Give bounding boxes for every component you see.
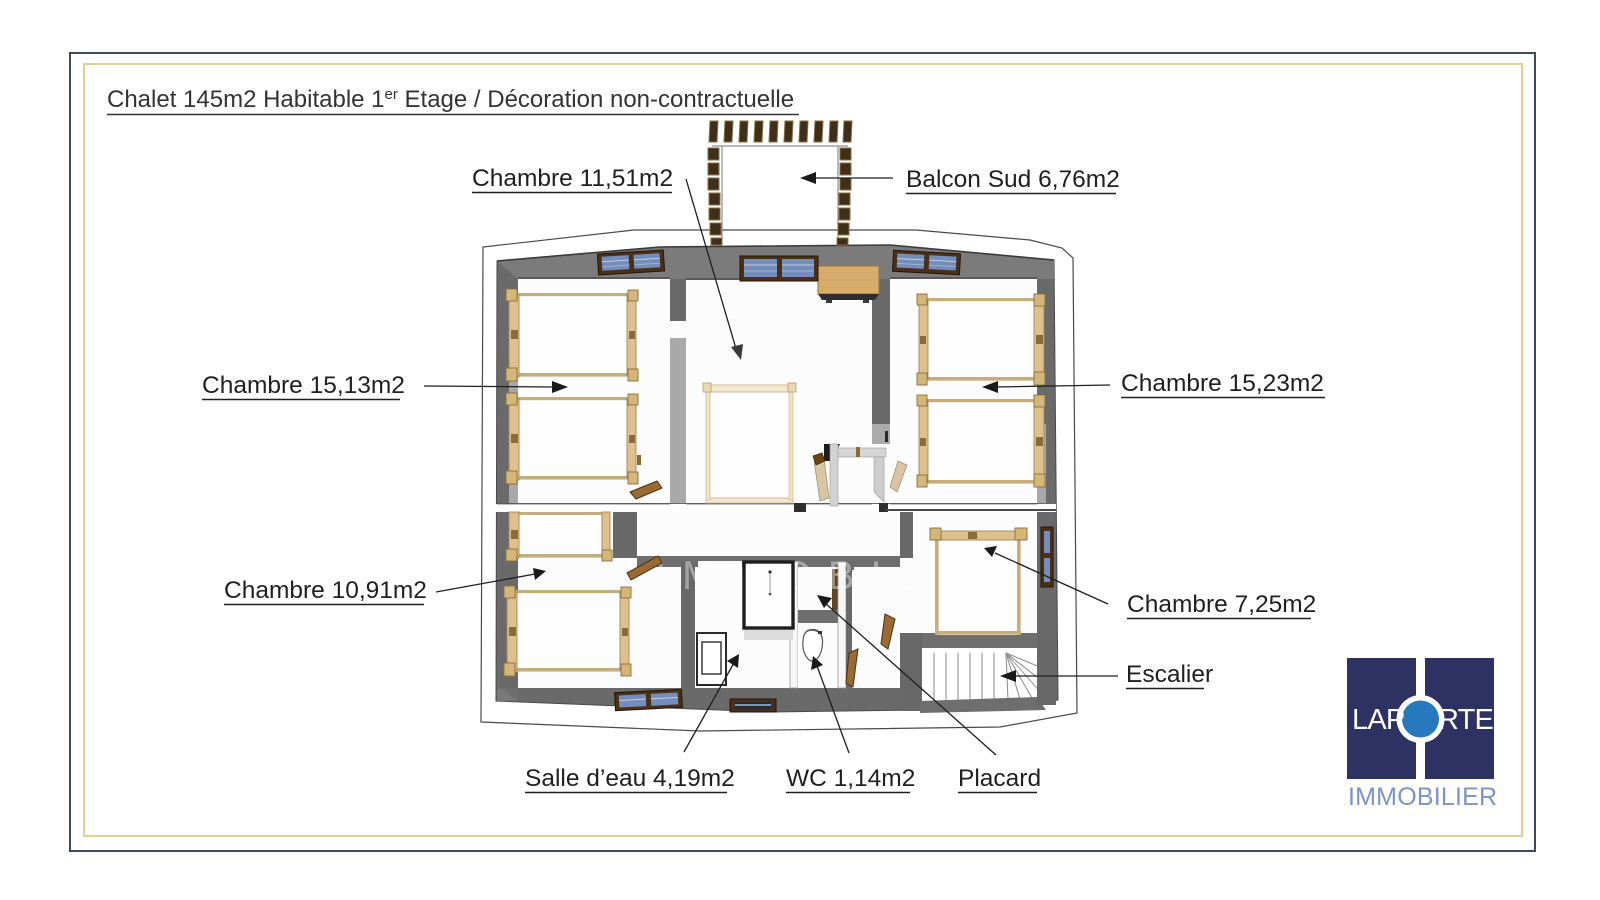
svg-text:Chambre 15,13m2: Chambre 15,13m2 [202,372,405,399]
svg-text:Salle d’eau 4,19m2: Salle d’eau 4,19m2 [525,765,735,792]
svg-text:Placard: Placard [958,765,1041,792]
svg-text:IMMOBILIER: IMMOBILIER [1348,783,1497,811]
svg-text:RTE: RTE [1438,704,1494,736]
svg-text:Balcon Sud 6,76m2: Balcon Sud 6,76m2 [906,166,1120,193]
svg-text:Chambre 11,51m2: Chambre 11,51m2 [472,165,673,192]
svg-text:WC 1,14m2: WC 1,14m2 [786,765,915,792]
svg-text:LAP: LAP [1352,704,1404,736]
svg-text:Chalet 145m2 Habitable 1er Eta: Chalet 145m2 Habitable 1er Etage / Décor… [107,86,794,113]
svg-text:Chambre 15,23m2: Chambre 15,23m2 [1121,370,1324,397]
svg-text:Chambre 7,25m2: Chambre 7,25m2 [1127,591,1316,618]
svg-text:Chambre 10,91m2: Chambre 10,91m2 [224,577,427,604]
svg-text:Escalier: Escalier [1126,661,1213,688]
